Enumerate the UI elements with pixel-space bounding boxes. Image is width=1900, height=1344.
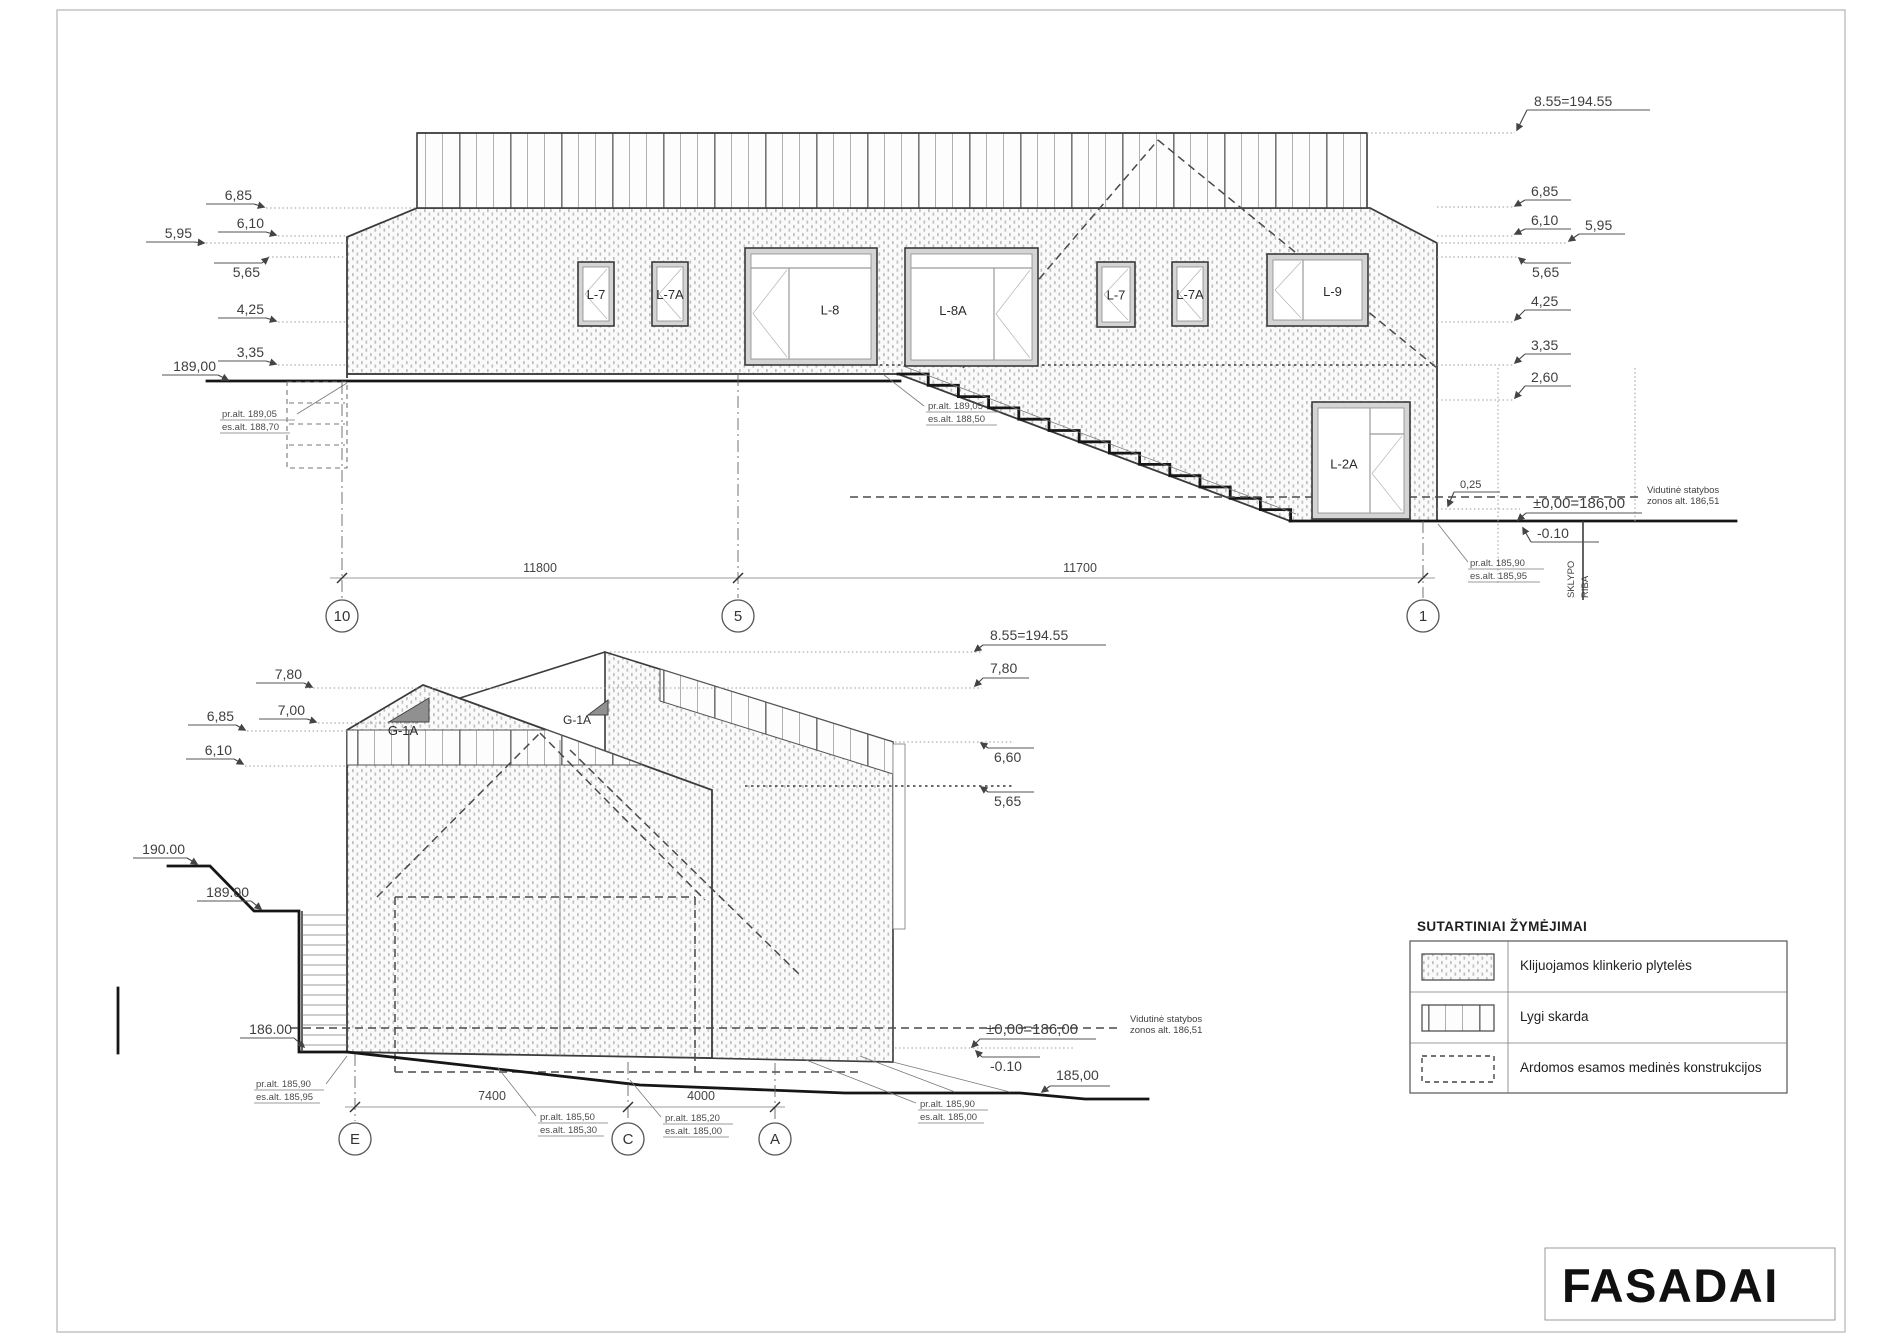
zone-note: Vidutinė statybos (1130, 1014, 1202, 1025)
property-line-label: SKLYPO (1566, 561, 1577, 598)
drawing-sheet: 6,85 6,10 5,95 5,65 4,25 3,35 189,00 8.5… (0, 0, 1900, 1344)
alt-note: pr.alt. 189,05 (928, 401, 983, 412)
window-l8: L-8 (745, 248, 877, 365)
ridge-level-label: 8.55=194.55 (990, 627, 1068, 643)
klinker-hatch-swatch (1422, 954, 1494, 980)
alt-note: es.alt. 188,70 (222, 422, 279, 433)
legend-item-label: Ardomos esamos medinės konstrukcijos (1520, 1060, 1762, 1075)
level-label: 4,25 (1531, 293, 1558, 309)
level-label: 5,95 (165, 225, 192, 241)
window-label: L-9 (1323, 284, 1342, 299)
zone-note: zonos alt. 186,51 (1647, 496, 1719, 507)
alt-note: es.alt. 185,00 (920, 1112, 977, 1123)
window-label: L-8A (939, 303, 967, 318)
window-label: L-8 (821, 303, 840, 318)
gable-vent-label: G-1A (563, 713, 591, 727)
level-label: 6,85 (225, 187, 252, 203)
zone-note: Vidutinė statybos (1647, 485, 1719, 496)
dimension-label: 11800 (523, 561, 557, 575)
legend-heading: SUTARTINIAI ŽYMĖJIMAI (1417, 919, 1587, 934)
zero-level-label: ±0,00=186,00 (986, 1021, 1078, 1038)
alt-note: es.alt. 185,00 (665, 1126, 722, 1137)
roof-skarda-band (417, 133, 1367, 208)
level-label: 3,35 (1531, 337, 1558, 353)
alt-note: es.alt. 188,50 (928, 414, 985, 425)
level-label: 6,10 (237, 215, 264, 231)
dimension-label: 7400 (478, 1089, 506, 1103)
level-label: 6,85 (1531, 183, 1558, 199)
terrain-level-label: 189.00 (206, 884, 249, 900)
zone-note: zonos alt. 186,51 (1130, 1025, 1202, 1036)
level-label: 6,10 (205, 742, 232, 758)
terrain-level-label: 186.00 (249, 1021, 292, 1037)
grid-bubble: C (623, 1131, 634, 1148)
window-l9: L-9 (1267, 254, 1368, 326)
grid-bubble: E (350, 1131, 360, 1148)
title-block: FASADAI (1545, 1248, 1835, 1320)
terrain-level-label: 190.00 (142, 841, 185, 857)
legend-item-label: Klijuojamos klinkerio plytelės (1520, 958, 1692, 973)
window-label: L-7A (656, 287, 684, 302)
facade-drawing: 6,85 6,10 5,95 5,65 4,25 3,35 189,00 8.5… (0, 0, 1900, 1344)
skarda-lines-swatch (1422, 1005, 1494, 1031)
window-label: L-7 (1107, 288, 1126, 303)
grid-bubble: 5 (734, 608, 742, 625)
legend-item-label: Lygi skarda (1520, 1009, 1589, 1024)
level-label: 7,80 (990, 660, 1017, 676)
window-l2a: L-2A (1312, 402, 1410, 519)
dimension-label: 4000 (687, 1089, 715, 1103)
sheet-title: FASADAI (1562, 1259, 1779, 1312)
terrain-level-label: 185,00 (1056, 1067, 1099, 1083)
window-l7-1: L-7 (578, 262, 614, 326)
window-label: L-7 (587, 287, 606, 302)
window-label: L-7A (1176, 287, 1204, 302)
level-label: 4,25 (237, 301, 264, 317)
grid-bubble: A (770, 1131, 780, 1148)
alt-note: es.alt. 185,95 (256, 1092, 313, 1103)
level-label: 6,60 (994, 749, 1021, 765)
zero-level-label: ±0,00=186,00 (1533, 495, 1625, 512)
alt-note: pr.alt. 189,05 (222, 409, 277, 420)
level-label: -0.10 (990, 1058, 1022, 1074)
property-line-label: RIBA (1580, 575, 1591, 598)
street-level-label: 189,00 (173, 358, 216, 374)
level-label: 5,65 (994, 793, 1021, 809)
alt-note: es.alt. 185,30 (540, 1125, 597, 1136)
gable-vent-label: G-1A (388, 723, 419, 738)
alt-note: pr.alt. 185,90 (1470, 558, 1525, 569)
level-label: 5,65 (1532, 264, 1559, 280)
level-label: -0.10 (1537, 525, 1569, 541)
window-l8a: L-8A (905, 248, 1038, 366)
alt-note: pr.alt. 185,50 (540, 1112, 595, 1123)
level-label: 3,35 (237, 344, 264, 360)
grid-bubble: 10 (334, 608, 351, 625)
ridge-level-label: 8.55=194.55 (1534, 93, 1612, 109)
dimension-label: 11700 (1063, 561, 1097, 575)
level-label: 2,60 (1531, 369, 1558, 385)
level-label: 7,80 (275, 666, 302, 682)
level-label: 5,65 (233, 264, 260, 280)
window-l7-2: L-7 (1097, 262, 1135, 327)
alt-note: pr.alt. 185,90 (256, 1079, 311, 1090)
window-l7a-2: L-7A (1172, 262, 1208, 326)
alt-note: es.alt. 185,95 (1470, 571, 1527, 582)
level-label: 6,10 (1531, 212, 1558, 228)
grid-bubble: 1 (1419, 608, 1427, 625)
level-label: 6,85 (207, 708, 234, 724)
window-l7a-1: L-7A (652, 262, 688, 326)
level-label: 5,95 (1585, 217, 1612, 233)
level-label: 0,25 (1460, 479, 1481, 491)
level-label: 7,00 (278, 702, 305, 718)
alt-note: pr.alt. 185,90 (920, 1099, 975, 1110)
window-label: L-2A (1330, 457, 1358, 472)
alt-note: pr.alt. 185,20 (665, 1113, 720, 1124)
